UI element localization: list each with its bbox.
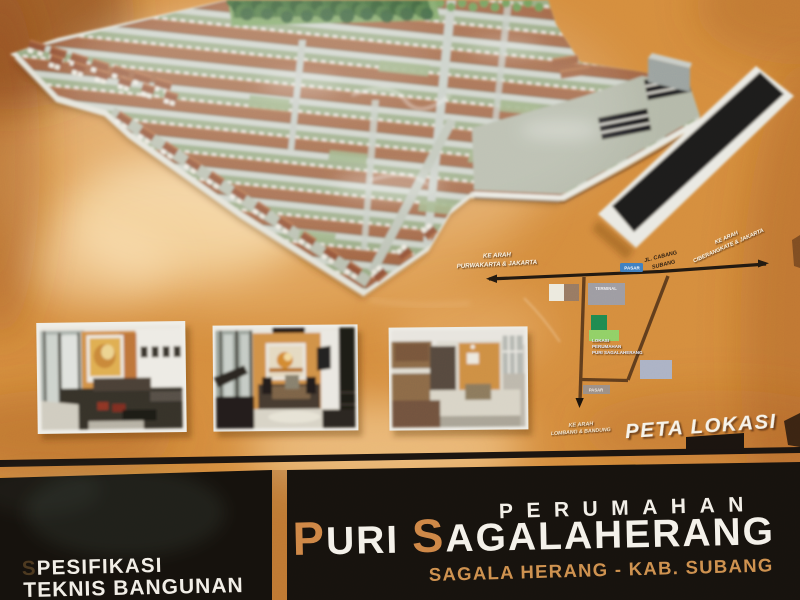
svg-text:LOKASI: LOKASI bbox=[592, 338, 609, 343]
svg-text:PASAR: PASAR bbox=[624, 266, 640, 271]
svg-text:TERMINAL: TERMINAL bbox=[595, 286, 617, 291]
svg-text:TEKNIS BANGUNAN: TEKNIS BANGUNAN bbox=[23, 574, 244, 600]
svg-text:PURI SAGALAHERANG: PURI SAGALAHERANG bbox=[592, 350, 643, 355]
svg-text:PERUMAHAN: PERUMAHAN bbox=[592, 344, 621, 349]
svg-text:PASAR: PASAR bbox=[589, 388, 603, 393]
svg-text:KE ARAH: KE ARAH bbox=[483, 251, 512, 259]
